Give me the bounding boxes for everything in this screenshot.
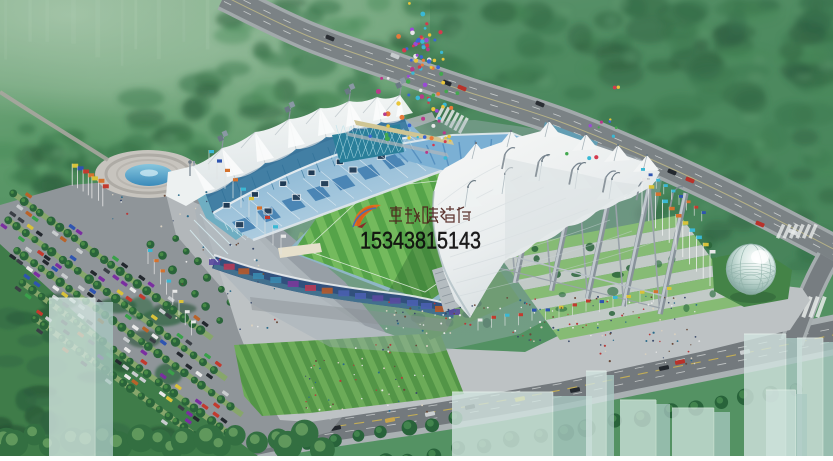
svg-text:15343815143: 15343815143 xyxy=(360,228,481,255)
